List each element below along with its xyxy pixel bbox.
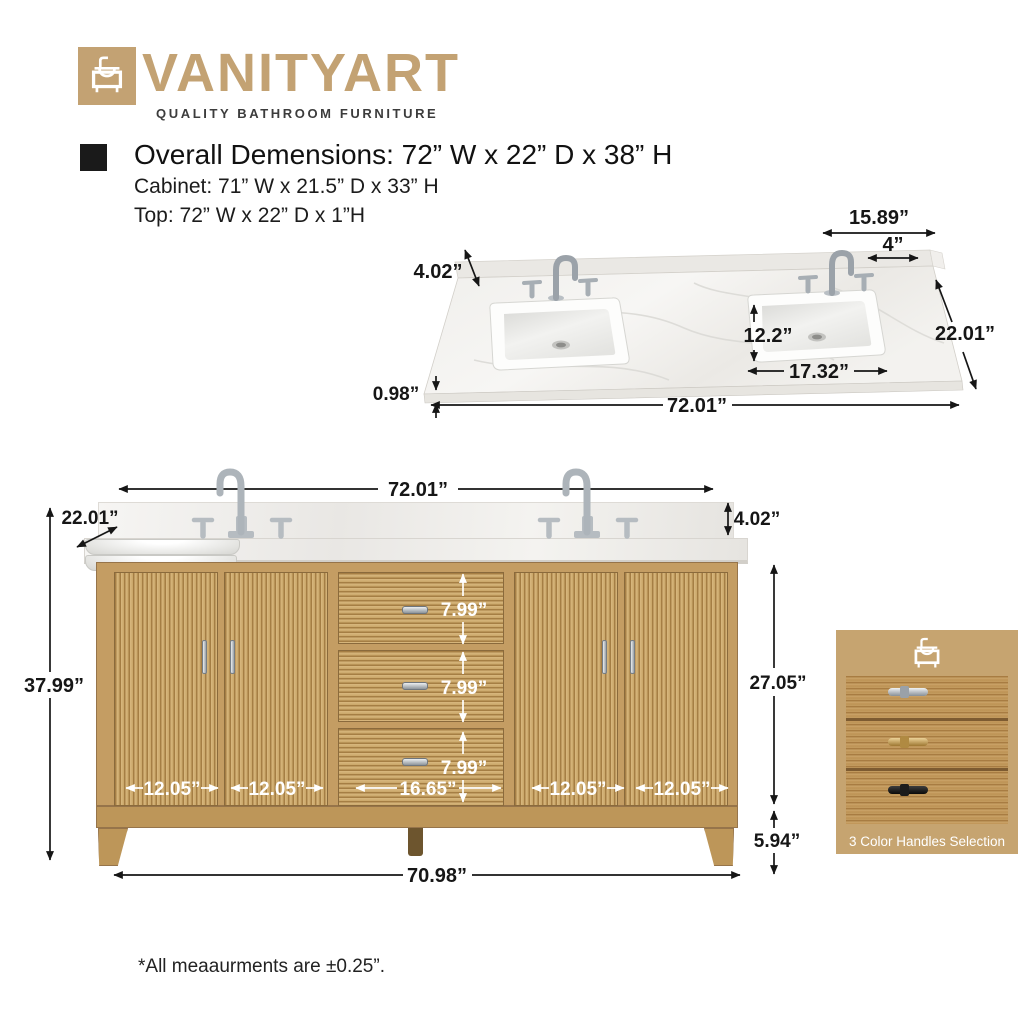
dim-sink-front-depth: 12.2” [744,325,793,347]
drawer-gap [846,718,1008,721]
dim-drawer3-height: 7.99” [441,758,487,779]
handle-option-chrome [888,688,928,696]
dim-backsplash-front: 4.02” [734,509,780,530]
overall-dimensions-title: Overall Demensions: 72” W x 22” D x 38” … [134,139,672,171]
dim-backsplash-height: 4.02” [414,261,463,283]
dim-width-bottom: 70.98” [407,865,467,887]
measurement-disclaimer: *All meaaurments are ±0.25”. [138,956,385,978]
dim-depth: 22.01” [935,323,995,345]
handles-selection-box: 3 Color Handles Selection [836,630,1018,854]
inner-dimension-lines [126,574,728,802]
handle-option-black [888,786,928,794]
dim-drawer-width: 16.65” [399,779,456,800]
front-view-annotations: 72.01” 22.01” 4.02” 37.99” 27.05” 5.94” … [0,440,820,910]
dim-top-thickness: 0.98” [373,384,419,405]
handle-option-gold [888,738,928,746]
sink-left [490,298,629,370]
dim-door4-width: 12.05” [653,779,710,800]
bullet-square [80,144,107,171]
faucet-front-left [194,472,290,538]
brand-tagline: QUALITY BATHROOM FURNITURE [156,106,438,121]
vanity-icon [84,53,130,99]
dim-sink-width: 17.32” [789,361,849,383]
dim-width: 72.01” [667,395,727,417]
dim-drawer2-height: 7.99” [441,678,487,699]
dim-drawer1-height: 7.99” [441,600,487,621]
dim-right-offset: 15.89” [849,207,909,229]
outer-dimension-lines [50,489,774,875]
dim-door1-width: 12.05” [143,779,200,800]
handles-caption: 3 Color Handles Selection [836,834,1018,849]
dim-depth-front: 22.01” [61,508,118,529]
dim-width-top: 72.01” [388,479,448,501]
inner-dimension-labels: 7.99” 7.99” 7.99” 16.65” 12.05” 12.05” 1… [143,600,710,800]
faucet-front-right [540,472,636,538]
handles-photo [846,676,1008,824]
dim-faucet-span: 4” [882,234,903,256]
handle-post [900,784,909,796]
outer-dimension-labels: 72.01” 22.01” 4.02” 37.99” 27.05” 5.94” … [24,479,807,887]
handle-post [900,736,909,748]
vanity-icon-white [908,635,946,673]
brand-logo-icon [78,47,136,105]
brand-name: VANITYART [142,42,460,104]
dim-door3-width: 12.05” [549,779,606,800]
countertop-view: 15.89” 4” 4.02” 12.2” 22.01” 17.32” 0.98… [364,188,1024,428]
dim-leg-height: 5.94” [754,831,800,852]
dim-height-total: 37.99” [24,675,84,697]
drawer-gap [846,768,1008,771]
dim-cabinet-height: 27.05” [749,673,806,694]
handle-post [900,686,909,698]
top-dimensions: Top: 72” W x 22” D x 1”H [134,204,365,228]
dim-door2-width: 12.05” [248,779,305,800]
